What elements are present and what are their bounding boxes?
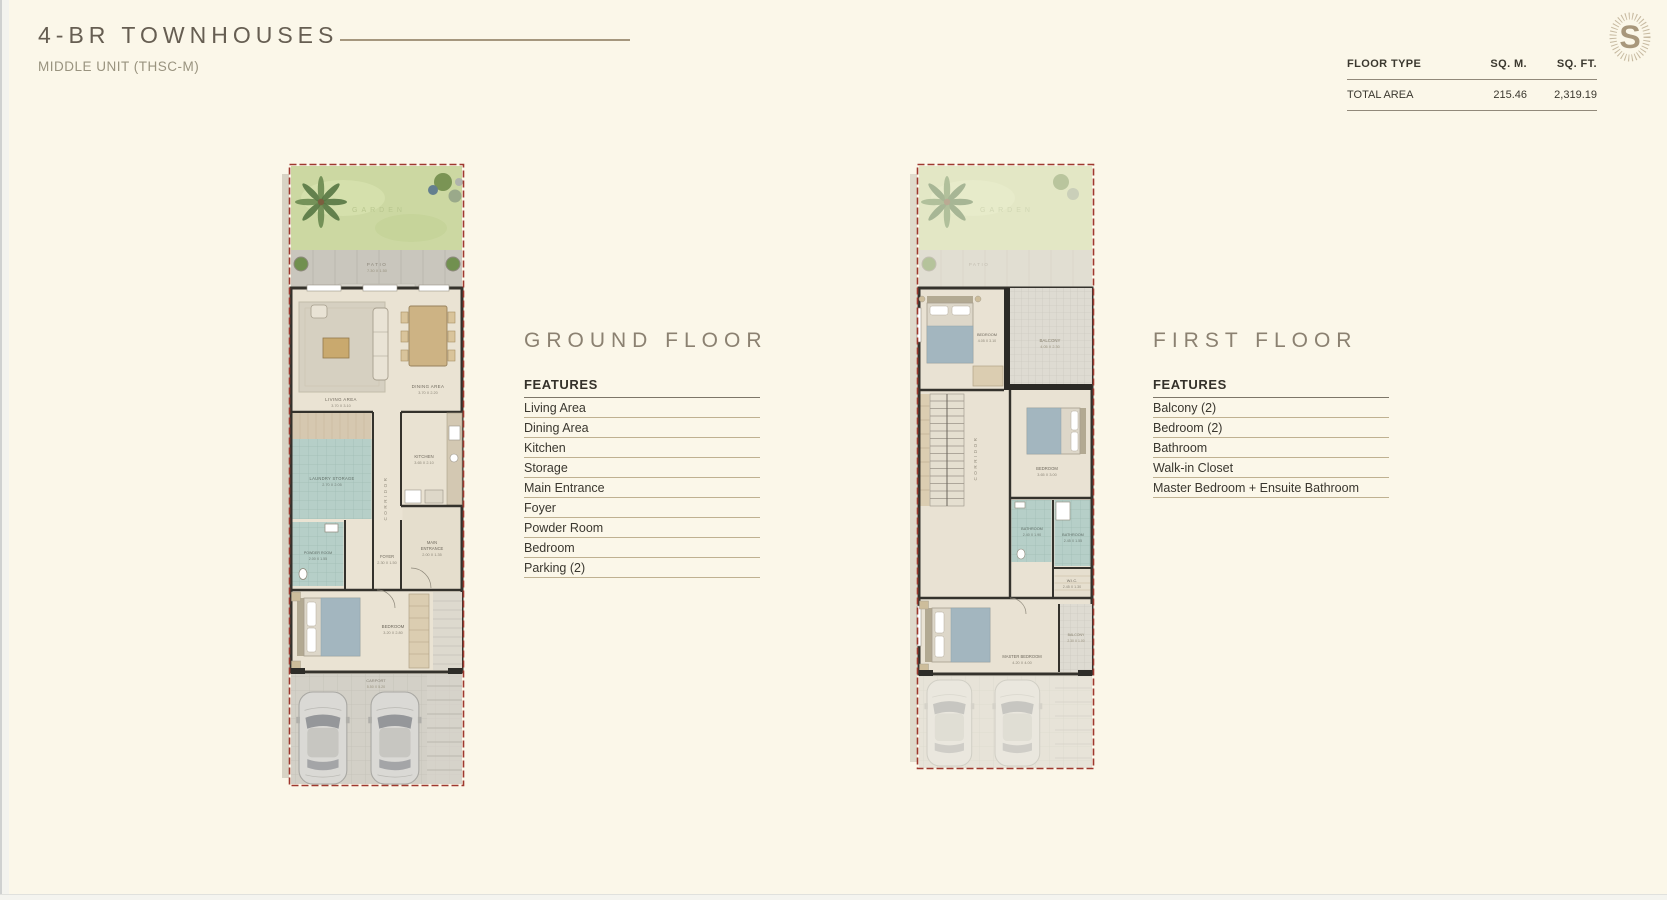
window-left-edge — [0, 0, 9, 900]
bathroom2-label: BATHROOM — [1062, 533, 1084, 537]
palm-tree-icon — [921, 176, 973, 228]
car-icon — [296, 692, 349, 784]
balcony-dims: 4.05 X 2.30 — [1040, 345, 1059, 349]
feature-item: Living Area — [524, 398, 760, 418]
feature-item: Walk-in Closet — [1153, 458, 1389, 478]
page-title: 4-BR TOWNHOUSES — [38, 22, 338, 49]
col-sqft: SQ. FT. — [1527, 58, 1597, 70]
toilet-icon — [1017, 549, 1025, 559]
nightstand — [920, 601, 929, 609]
coffee-table-icon — [323, 338, 349, 358]
powder-dims: 2.00 X 1.55 — [309, 557, 327, 561]
sofa-icon — [373, 308, 388, 380]
garden-label: GARDEN — [352, 207, 406, 214]
closet-strip — [921, 394, 930, 506]
side-walkway — [433, 592, 462, 670]
laundry-label: LAUNDRY STORAGE — [310, 476, 355, 481]
patio-label: PATIO — [367, 262, 388, 267]
total-area-sqm: 215.46 — [1469, 89, 1527, 101]
plan-shadow — [282, 174, 289, 778]
feature-item: Bedroom (2) — [1153, 418, 1389, 438]
balcony2-label: BALCONY — [1068, 633, 1085, 637]
car-icon — [924, 680, 974, 766]
palm-tree-icon — [295, 176, 347, 228]
features-label: FEATURES — [1153, 377, 1389, 398]
features-label: FEATURES — [524, 377, 760, 398]
svg-text:S: S — [1619, 19, 1640, 55]
col-sqm: SQ. M. — [1469, 58, 1527, 70]
nightstand — [292, 592, 301, 601]
bathroom2-dims: 2.45 X 1.55 — [1064, 539, 1082, 543]
bathroom1-label: BATHROOM — [1021, 527, 1043, 531]
dining-dims: 3.70 X 2.20 — [418, 391, 437, 395]
area-table: FLOOR TYPE SQ. M. SQ. FT. TOTAL AREA 215… — [1347, 58, 1597, 111]
kitchen-dims: 3.65 X 2.10 — [414, 461, 433, 465]
bedroom-dims: 3.20 X 2.80 — [383, 631, 402, 635]
fridge-icon — [405, 490, 421, 503]
bedroom1-label: BEDROOM — [977, 332, 997, 337]
first-floor-heading: FIRST FLOOR — [1153, 329, 1357, 353]
foyer-label: FOYER — [380, 554, 394, 559]
nightstand — [975, 296, 981, 302]
feature-item: Dining Area — [524, 418, 760, 438]
feature-item: Bathroom — [1153, 438, 1389, 458]
ground-floor-plan: GARDEN PATIO 7.30 X 1.50 LIVING AREA 3. — [281, 158, 471, 792]
faded-carport-below — [919, 676, 1092, 768]
main-entrance-label-2: ENTRANCE — [421, 546, 444, 551]
page-subtitle: MIDDLE UNIT (THSC-M) — [38, 59, 199, 74]
window-bottom-edge — [0, 894, 1667, 900]
feature-item: Balcony (2) — [1153, 398, 1389, 418]
garden-label: GARDEN — [980, 207, 1034, 214]
patio-label: PATIO — [969, 262, 990, 267]
toilet-icon — [299, 569, 307, 580]
balcony-label: BALCONY — [1040, 338, 1061, 343]
wic-label: W.I.C. — [1067, 578, 1078, 583]
main-entrance-dims: 2.00 X 1.35 — [422, 553, 441, 557]
faded-garden-below: GARDEN PATIO — [919, 166, 1092, 288]
living-dims: 3.70 X 3.10 — [331, 404, 350, 408]
brand-monogram-icon: S — [1604, 8, 1656, 66]
window-icon — [307, 285, 341, 291]
first-floor-features: FEATURES Balcony (2) Bedroom (2) Bathroo… — [1153, 377, 1389, 498]
sink-icon — [325, 524, 338, 532]
bedroom2-dims: 3.65 X 3.00 — [1037, 473, 1056, 477]
bush-icon — [1053, 174, 1069, 190]
wic-dims: 2.45 X 1.30 — [1063, 585, 1081, 589]
foyer-dims: 2.30 X 1.50 — [377, 561, 396, 565]
laundry-dims: 2.70 X 2.05 — [322, 483, 341, 487]
bed-icon — [1027, 408, 1086, 454]
car-icon — [992, 680, 1042, 766]
bedroom-label: BEDROOM — [382, 624, 405, 629]
bed-icon — [925, 608, 990, 662]
carport-dims: 5.50 X 5.20 — [367, 685, 385, 689]
stove-icon — [449, 426, 460, 440]
bedroom2-label: BEDROOM — [1036, 466, 1058, 471]
car-icon — [368, 692, 421, 784]
window-icon — [419, 285, 449, 291]
plan-shadow — [910, 174, 917, 762]
carport-label: CARPORT — [366, 678, 386, 683]
planter-icon — [446, 257, 460, 271]
ground-floor-features: FEATURES Living Area Dining Area Kitchen… — [524, 377, 760, 578]
bed-icon — [297, 598, 360, 656]
bathroom1-dims: 2.40 X 1.90 — [1023, 533, 1041, 537]
planter-icon — [294, 257, 308, 271]
dining-table-icon — [409, 306, 447, 366]
total-area-label: TOTAL AREA — [1347, 89, 1469, 101]
feature-item: Powder Room — [524, 518, 760, 538]
feature-item: Kitchen — [524, 438, 760, 458]
window-icon — [363, 285, 397, 291]
living-label: LIVING AREA — [325, 397, 357, 402]
armchair-icon — [311, 305, 327, 318]
area-table-header: FLOOR TYPE SQ. M. SQ. FT. — [1347, 58, 1597, 80]
powder-label: POWDER ROOM — [304, 551, 332, 555]
nightstand — [919, 296, 925, 302]
kitchen-label: KITCHEN — [414, 454, 433, 459]
bed-icon — [927, 296, 973, 363]
patio-dims: 7.30 X 1.50 — [367, 268, 388, 273]
master-bedroom-label: MASTER BEDROOM — [1002, 654, 1042, 659]
total-area-sqft: 2,319.19 — [1527, 89, 1597, 101]
ground-floor-heading: GROUND FLOOR — [524, 329, 768, 353]
title-rule — [340, 39, 630, 41]
main-entrance-label-1: MAIN — [427, 540, 437, 545]
wardrobe-icon — [973, 366, 1003, 386]
feature-item: Master Bedroom + Ensuite Bathroom — [1153, 478, 1389, 498]
shower-icon — [1056, 502, 1070, 520]
corridor-label: CORRIDOR — [973, 435, 978, 480]
feature-item: Parking (2) — [524, 558, 760, 578]
feature-item: Foyer — [524, 498, 760, 518]
master-bedroom-dims: 4.20 X 4.00 — [1012, 661, 1031, 665]
area-table-row: TOTAL AREA 215.46 2,319.19 — [1347, 80, 1597, 111]
wardrobe-icon — [409, 594, 429, 668]
corridor-label: CORRIDOR — [383, 475, 388, 520]
feature-item: Storage — [524, 458, 760, 478]
sink-icon — [1015, 502, 1025, 508]
sink-icon — [450, 454, 458, 462]
feature-item: Bedroom — [524, 538, 760, 558]
dining-label: DINING AREA — [412, 384, 445, 389]
balcony2-dims: 2.30 X 1.00 — [1067, 639, 1084, 643]
bedroom1-dims: 4.05 X 3.10 — [978, 339, 996, 343]
first-floor-plan: GARDEN PATIO BALCONY 4.05 X 2.30 — [909, 158, 1101, 776]
col-floor-type: FLOOR TYPE — [1347, 58, 1469, 70]
feature-item: Main Entrance — [524, 478, 760, 498]
